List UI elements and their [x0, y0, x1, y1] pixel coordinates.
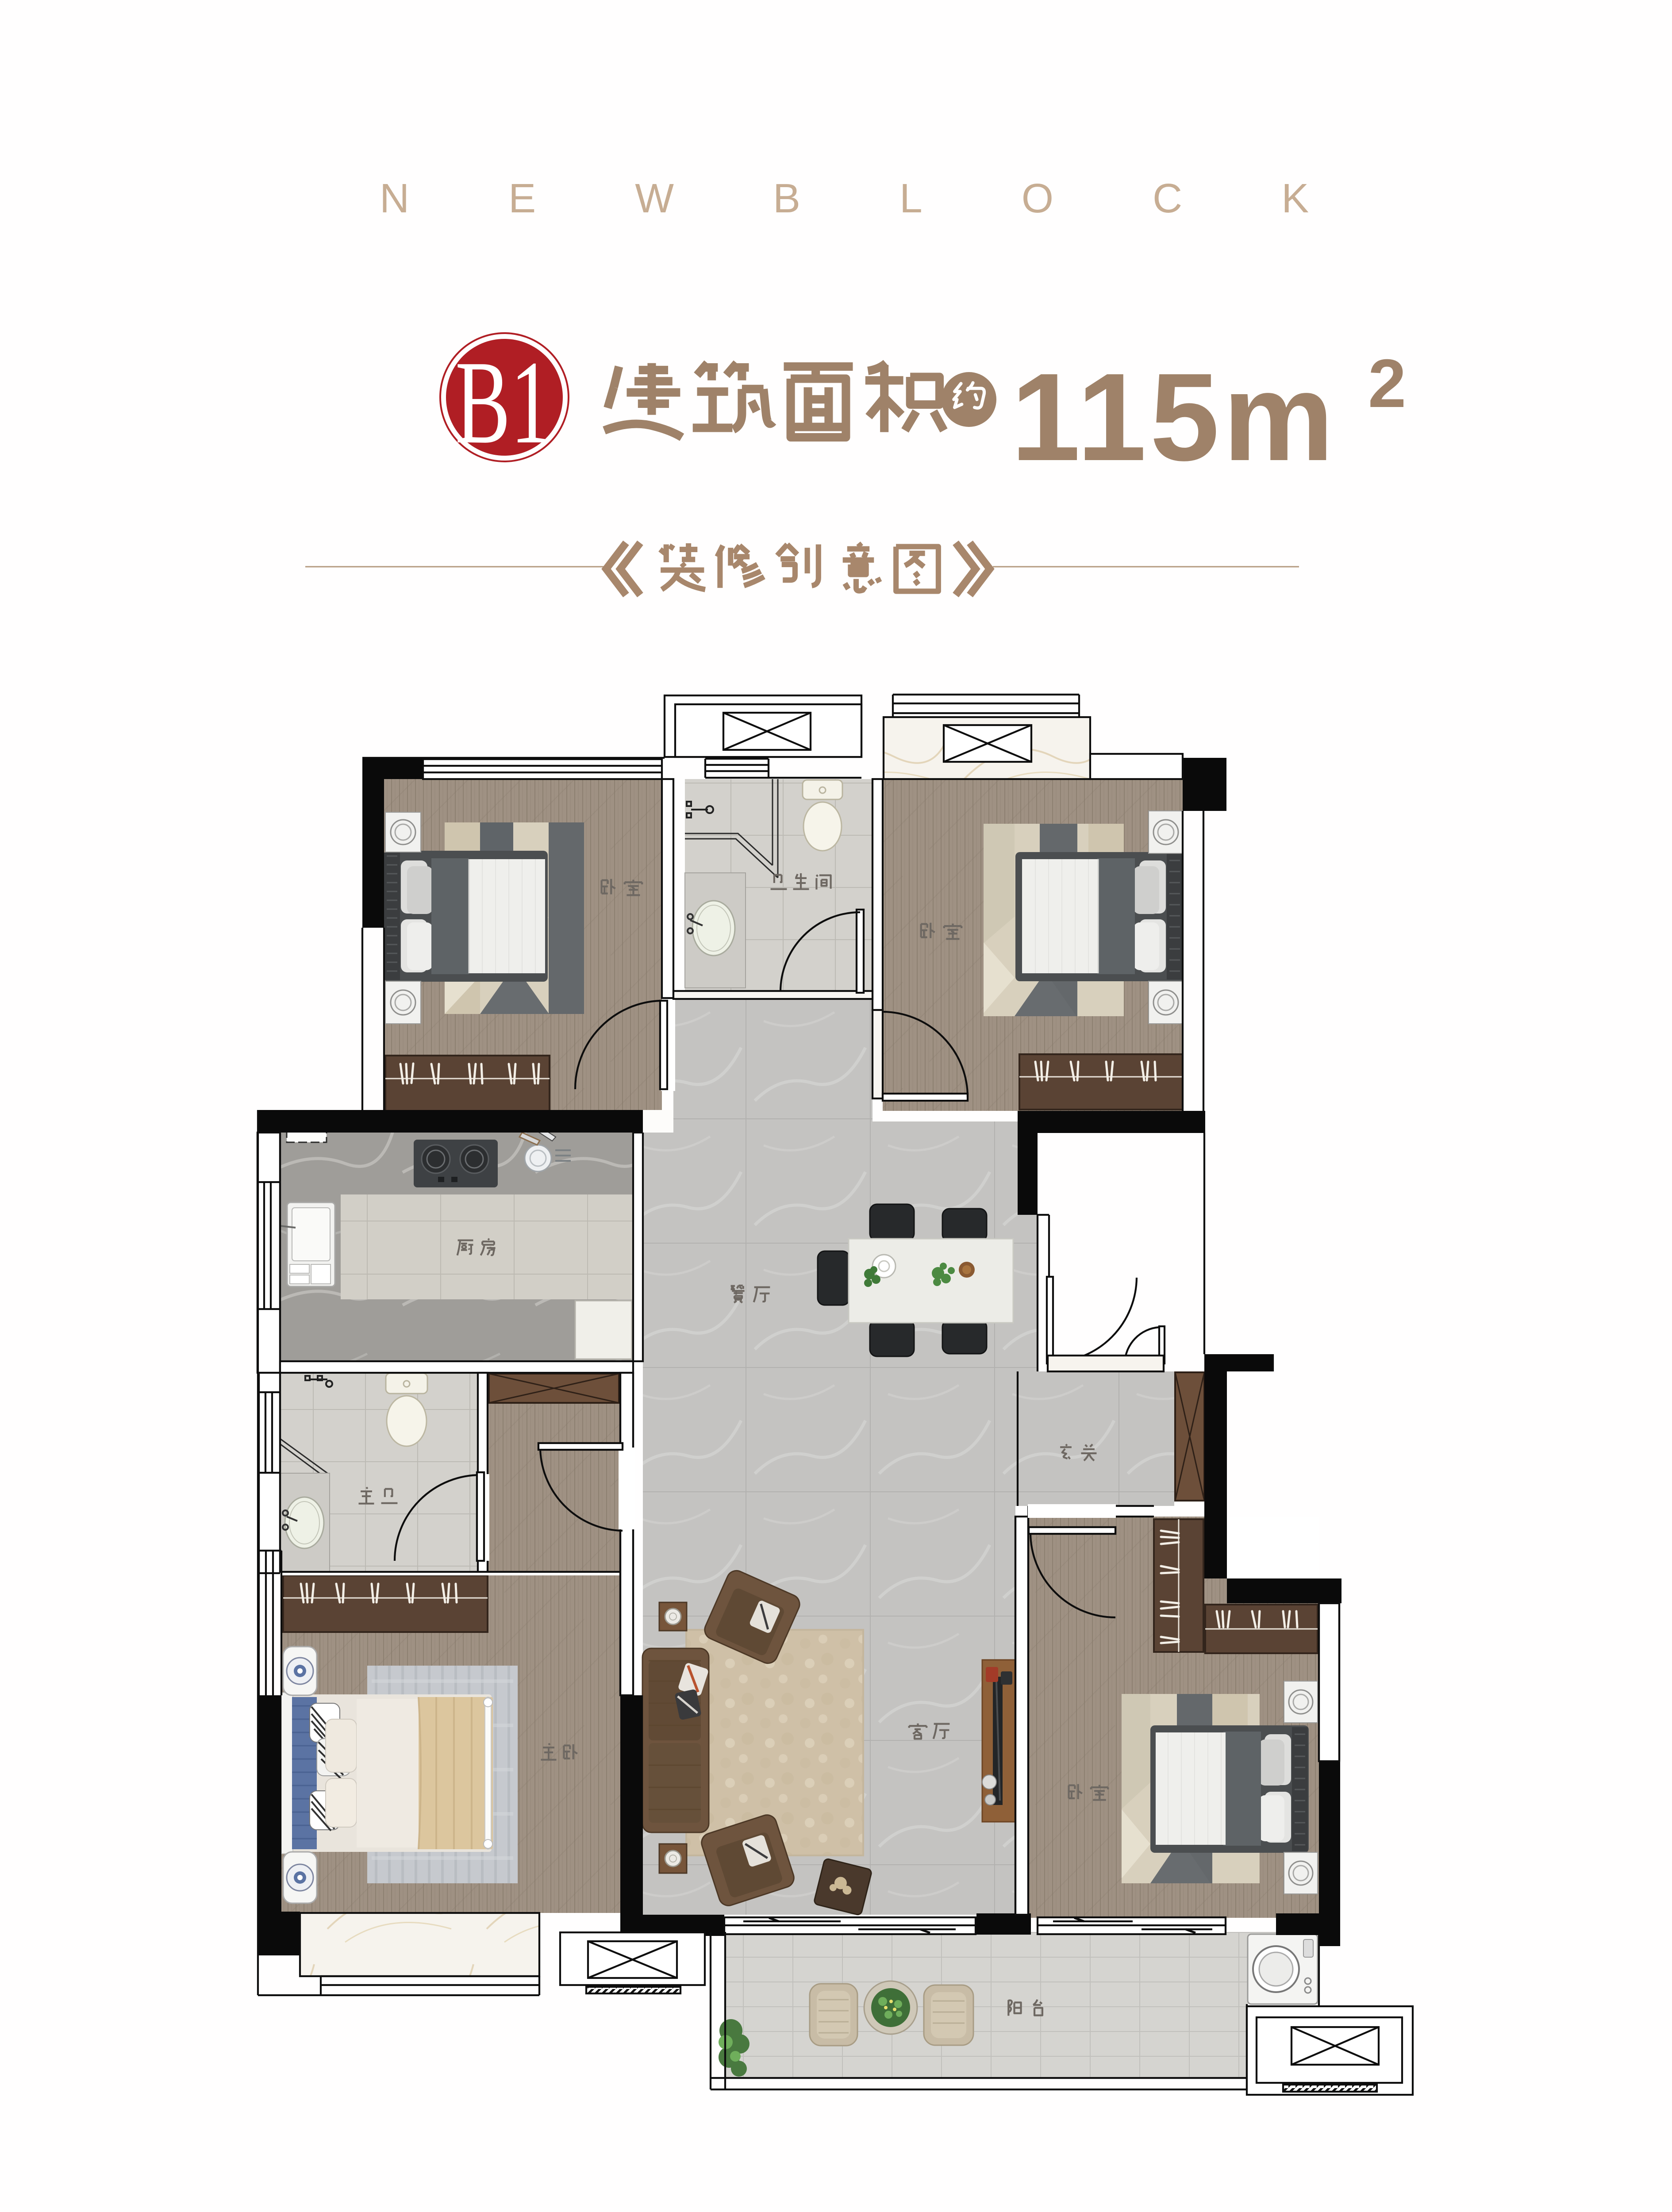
svg-text:B1: B1 — [455, 336, 552, 469]
svg-text:NEWBLOCK: NEWBLOCK — [380, 175, 1408, 221]
svg-text:2: 2 — [1368, 345, 1406, 422]
svg-text:115m: 115m — [1011, 347, 1338, 487]
